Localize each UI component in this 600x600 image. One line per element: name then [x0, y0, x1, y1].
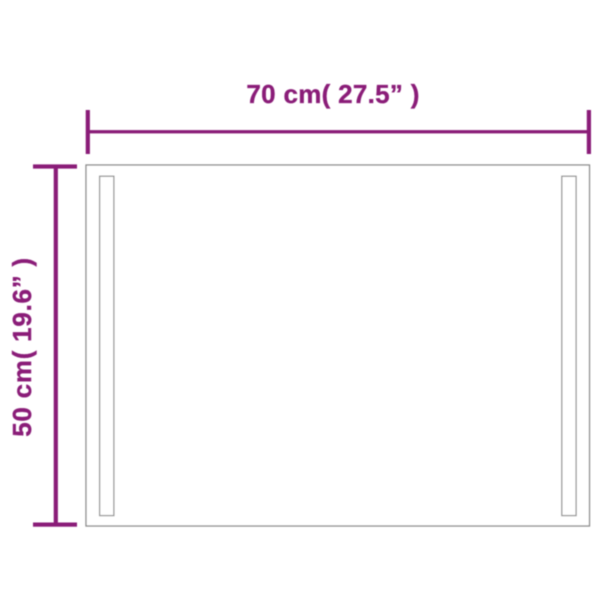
svg-text:70 cm( 27.5” ): 70 cm( 27.5” )	[246, 79, 419, 109]
svg-text:50 cm( 19.6” ): 50 cm( 19.6” )	[7, 258, 37, 437]
